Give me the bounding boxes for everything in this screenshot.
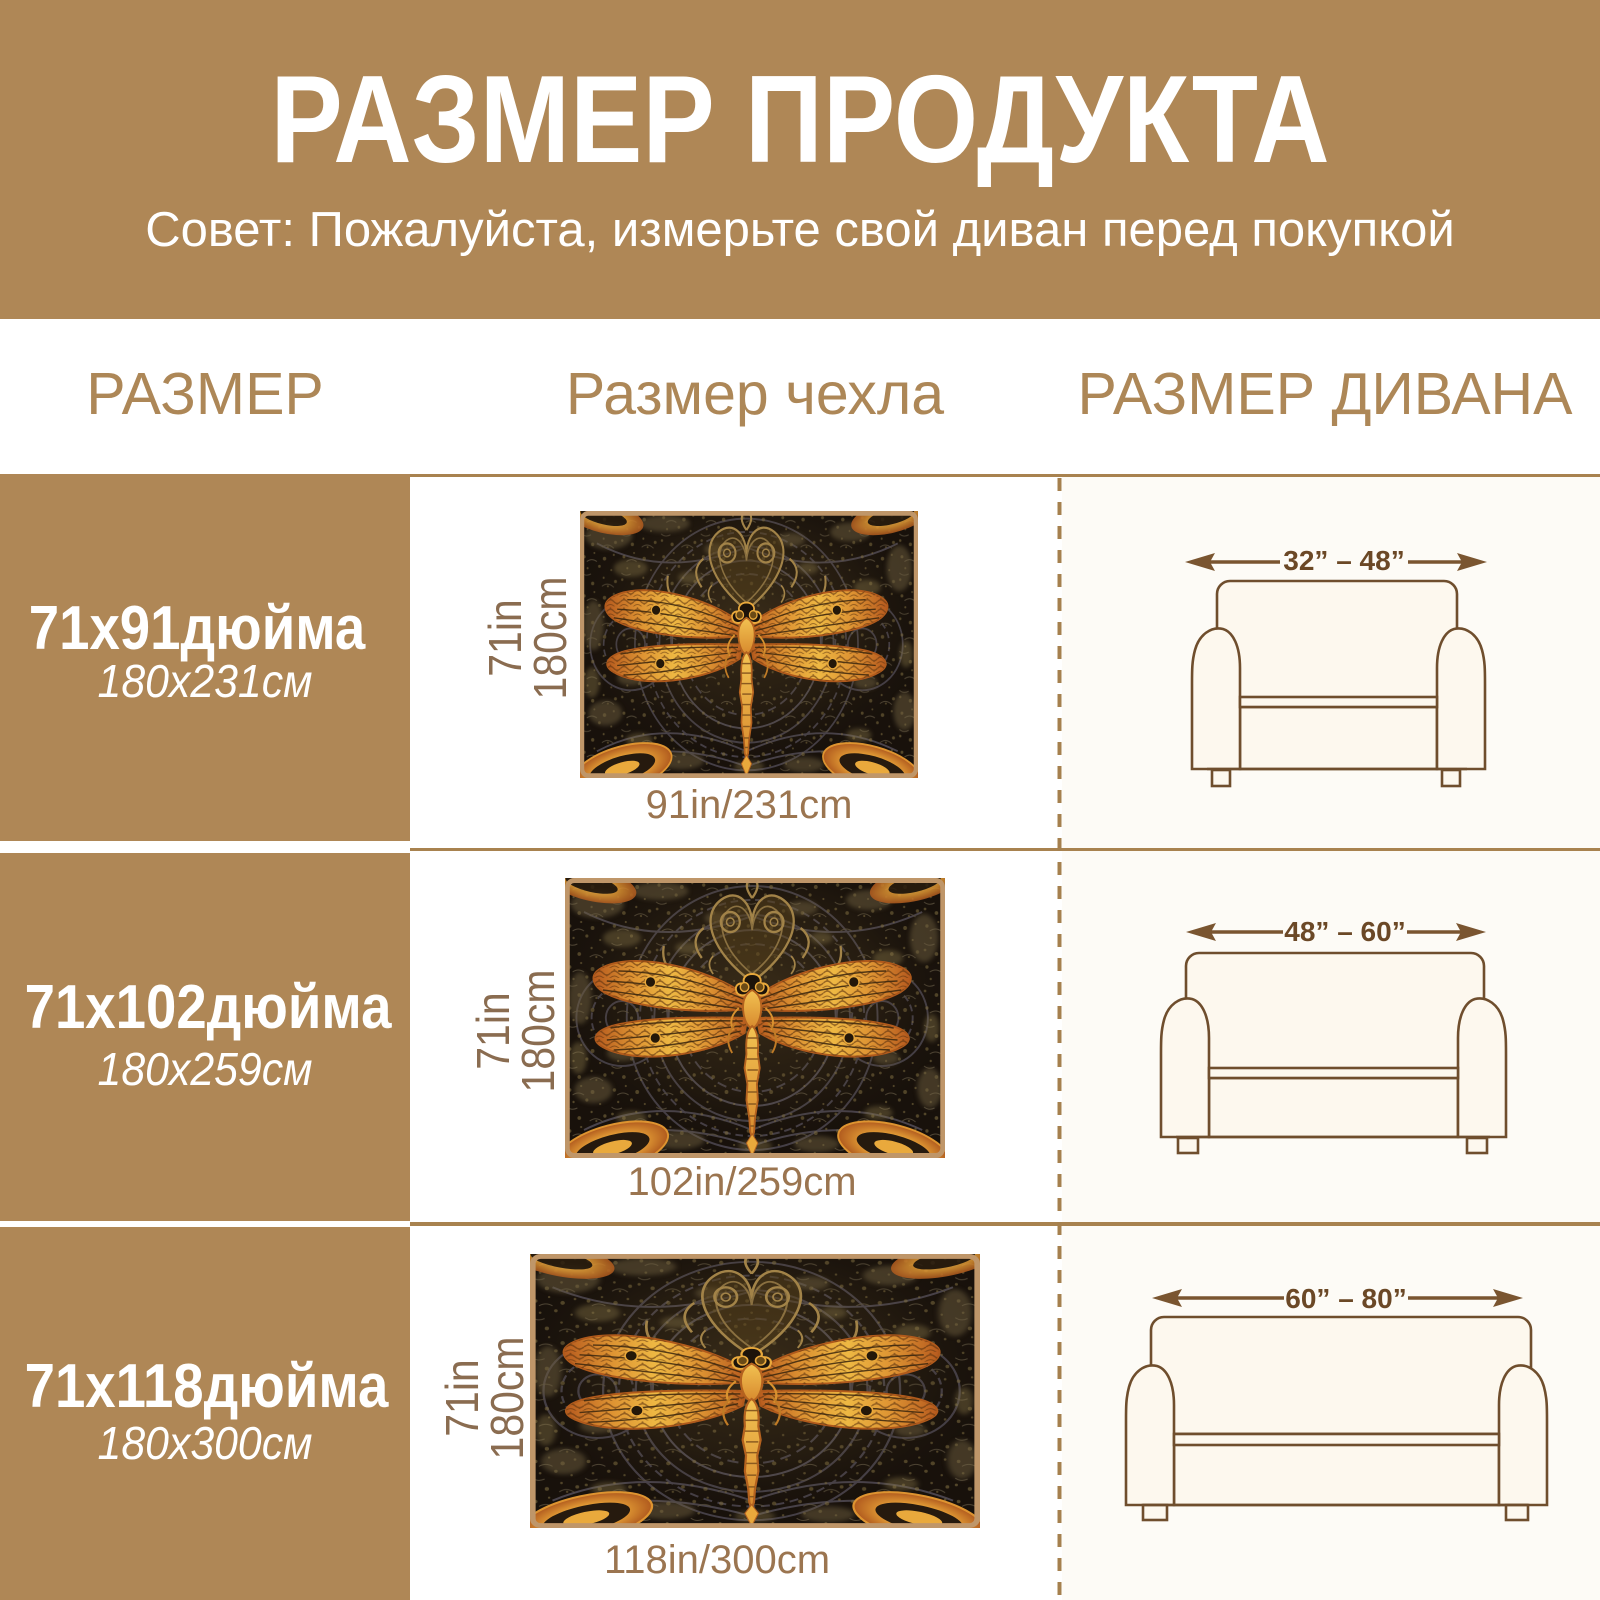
svg-text:48” – 60”: 48” – 60” — [1284, 916, 1405, 947]
svg-text:60” – 80”: 60” – 80” — [1285, 1283, 1406, 1314]
svg-text:32” – 48”: 32” – 48” — [1283, 545, 1404, 576]
